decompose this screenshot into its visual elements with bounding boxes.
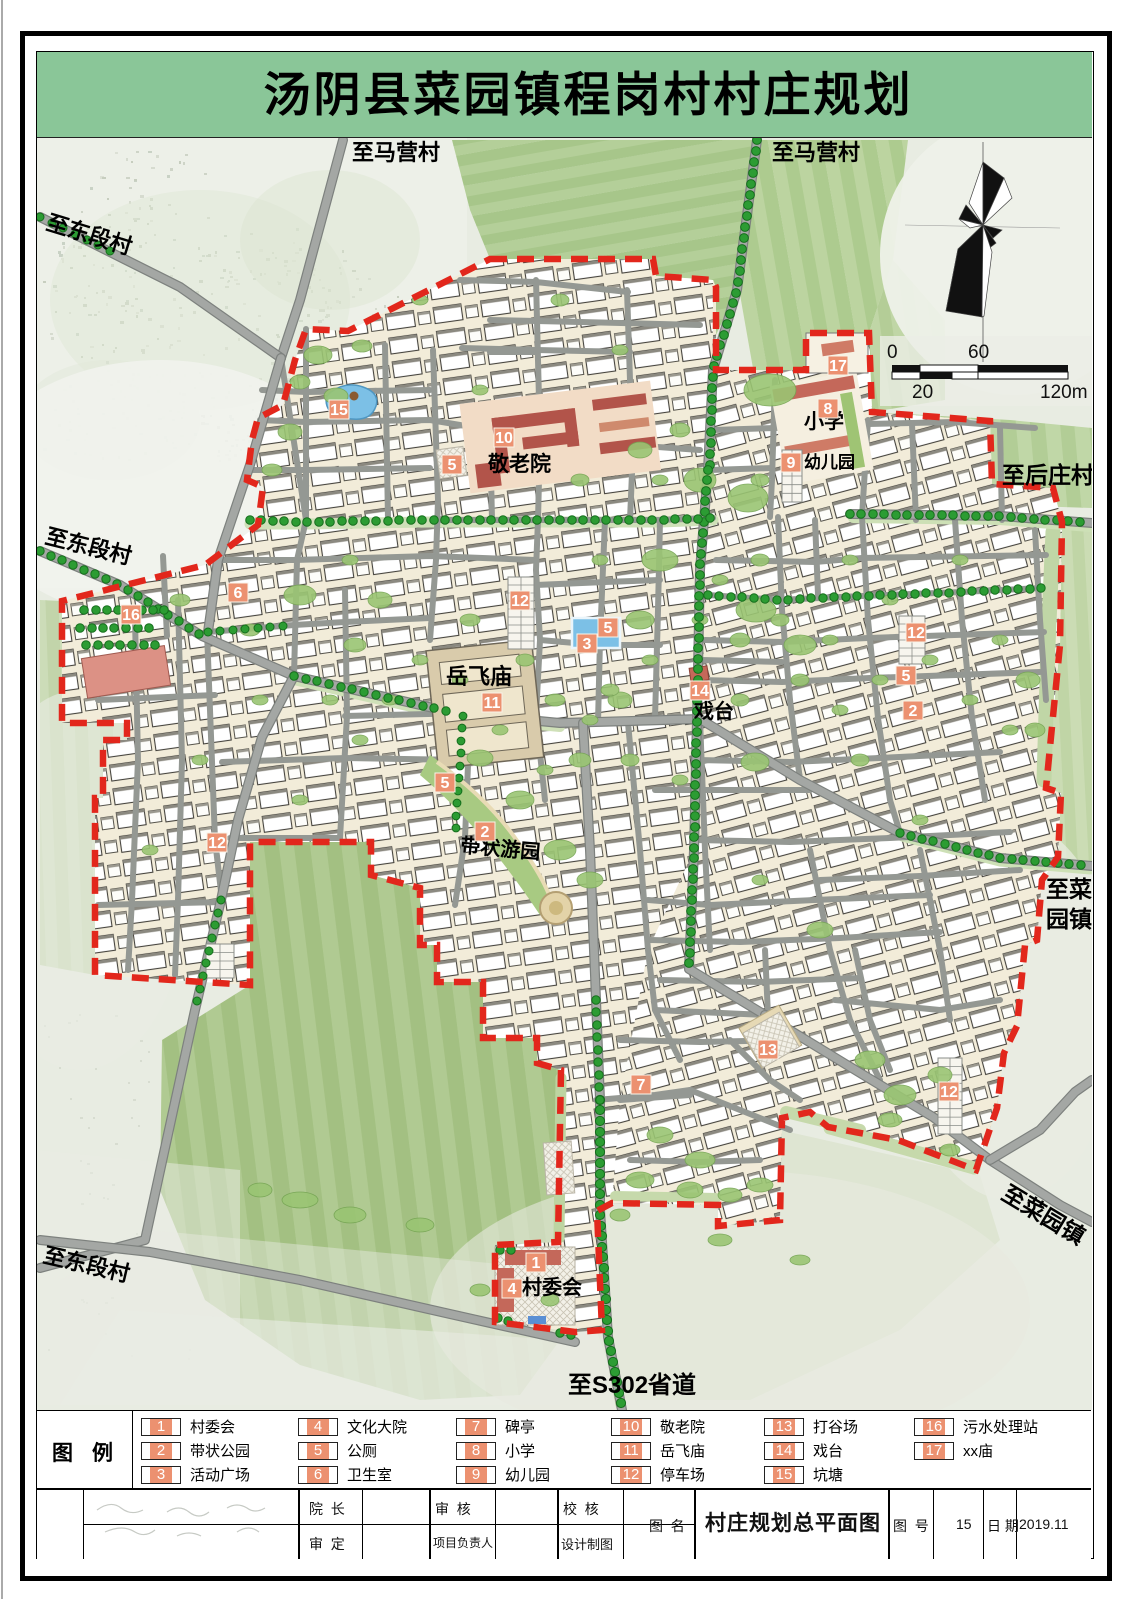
svg-text:至S302省道: 至S302省道 [568,1371,696,1399]
svg-text:戏台: 戏台 [693,699,734,723]
svg-text:12: 12 [511,593,529,610]
svg-text:5: 5 [902,668,911,685]
svg-text:20: 20 [912,382,933,403]
svg-text:60: 60 [968,342,989,363]
svg-text:17: 17 [829,358,847,375]
svg-text:5: 5 [604,620,613,637]
svg-text:4: 4 [508,1281,517,1298]
svg-text:15: 15 [330,402,348,419]
svg-text:11: 11 [484,695,501,712]
svg-text:幼儿园: 幼儿园 [804,452,855,472]
svg-text:至马营村: 至马营村 [352,140,440,165]
svg-text:2: 2 [909,703,918,720]
svg-text:5: 5 [441,775,450,792]
svg-text:12: 12 [940,1084,958,1101]
svg-text:至马营村: 至马营村 [772,140,860,165]
svg-text:7: 7 [637,1077,646,1094]
svg-text:6: 6 [234,585,243,602]
svg-text:5: 5 [448,457,457,474]
svg-text:1: 1 [532,1255,541,1272]
svg-text:13: 13 [759,1042,777,1059]
svg-text:16: 16 [122,607,140,624]
svg-text:0: 0 [887,342,898,363]
svg-text:12: 12 [208,835,226,852]
svg-text:8: 8 [824,401,833,418]
svg-text:村委会: 村委会 [522,1275,582,1299]
svg-text:12: 12 [907,625,925,642]
svg-text:敬老院: 敬老院 [487,452,551,476]
svg-text:园镇: 园镇 [1046,906,1092,932]
svg-text:2: 2 [481,824,490,841]
svg-text:岳飞庙: 岳飞庙 [446,664,512,689]
svg-text:9: 9 [787,455,796,472]
svg-text:10: 10 [495,430,513,447]
svg-text:120m: 120m [1040,382,1088,403]
svg-text:至菜: 至菜 [1046,876,1092,902]
svg-text:3: 3 [583,636,592,653]
svg-text:14: 14 [691,683,709,700]
svg-text:至后庄村: 至后庄村 [1002,462,1092,488]
